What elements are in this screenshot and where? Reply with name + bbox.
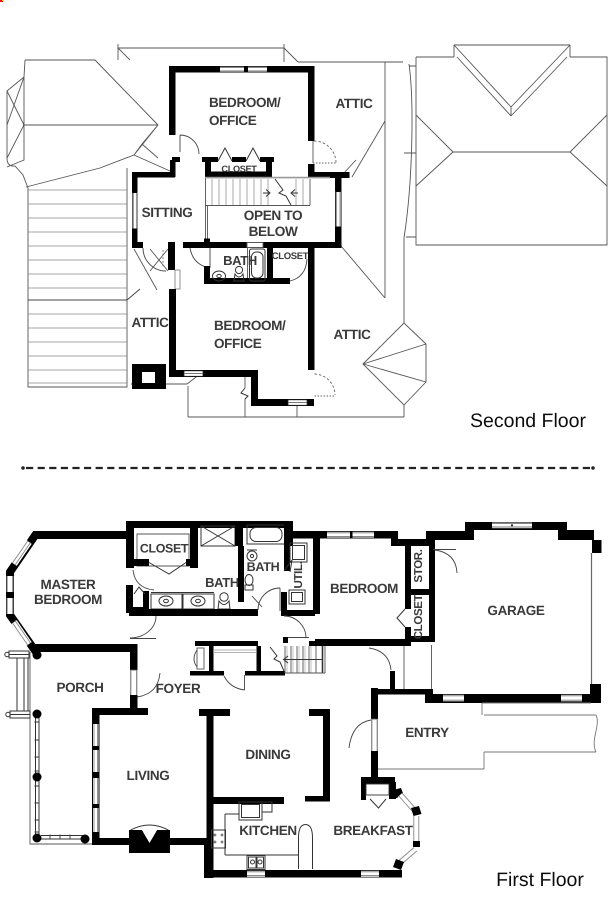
- svg-text:Second Floor: Second Floor: [470, 410, 586, 432]
- svg-text:OPEN TO: OPEN TO: [244, 208, 302, 223]
- svg-text:BEDROOM/: BEDROOM/: [209, 95, 281, 110]
- svg-text:CLOSET: CLOSET: [272, 251, 309, 262]
- svg-text:BEDROOM/: BEDROOM/: [214, 318, 286, 333]
- svg-text:ATTIC: ATTIC: [336, 96, 374, 111]
- svg-text:SITTING: SITTING: [142, 205, 193, 220]
- svg-text:UTIL.: UTIL.: [293, 561, 305, 588]
- svg-text:BATH: BATH: [223, 253, 257, 268]
- svg-text:CLOSET: CLOSET: [221, 164, 257, 174]
- svg-text:ATTIC: ATTIC: [132, 315, 170, 330]
- svg-text:GARAGE: GARAGE: [487, 603, 544, 618]
- svg-text:BATH: BATH: [247, 560, 280, 574]
- svg-text:KITCHEN: KITCHEN: [239, 823, 297, 838]
- svg-text:CLOSET: CLOSET: [413, 594, 425, 639]
- svg-text:BEDROOM: BEDROOM: [330, 581, 398, 596]
- svg-text:MASTER: MASTER: [41, 577, 97, 592]
- svg-text:ENTRY: ENTRY: [405, 725, 449, 740]
- svg-text:PORCH: PORCH: [56, 680, 103, 695]
- svg-text:CLOSET: CLOSET: [140, 542, 189, 556]
- svg-text:BELOW: BELOW: [249, 224, 298, 239]
- svg-text:BREAKFAST: BREAKFAST: [333, 823, 413, 838]
- svg-text:DINING: DINING: [245, 747, 290, 762]
- svg-text:STOR.: STOR.: [413, 549, 425, 582]
- svg-text:LIVING: LIVING: [127, 768, 170, 783]
- svg-text:First Floor: First Floor: [496, 869, 584, 891]
- svg-text:OFFICE: OFFICE: [209, 113, 257, 128]
- svg-text:BATH: BATH: [205, 575, 239, 590]
- svg-text:OFFICE: OFFICE: [214, 336, 262, 351]
- svg-text:FOYER: FOYER: [156, 681, 201, 696]
- svg-text:BEDROOM: BEDROOM: [34, 592, 102, 607]
- svg-text:ATTIC: ATTIC: [334, 327, 372, 342]
